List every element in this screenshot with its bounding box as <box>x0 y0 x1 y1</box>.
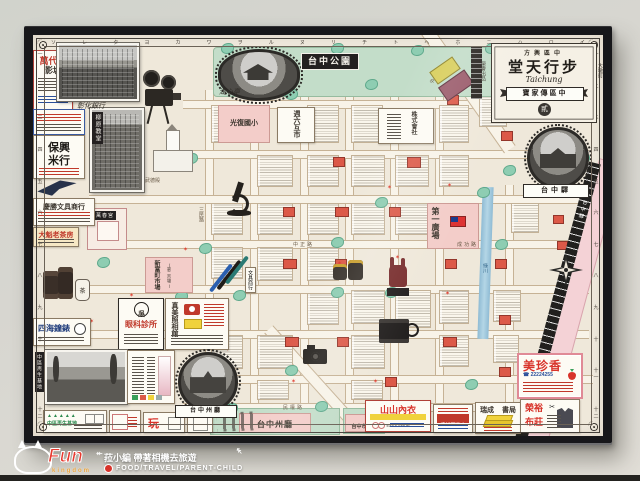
book-stack-2 <box>483 420 514 427</box>
red-building <box>333 157 345 167</box>
ad-fabric: 榮裕 布莊 ✂ <box>520 399 580 433</box>
camera-dot-icon <box>104 464 113 473</box>
drum-2 <box>348 260 363 280</box>
ad-stationery-lines <box>38 217 90 222</box>
star-marker: ✶ <box>183 247 188 253</box>
station-ribbon: 台中驛 <box>523 184 589 198</box>
bank-caption: 彰化銀行 <box>77 101 105 111</box>
tree-icon <box>503 165 516 176</box>
grid-numeral: 一 <box>36 51 44 58</box>
hand-label-box <box>387 288 409 296</box>
church-label: 柳原教堂 <box>92 112 103 144</box>
title-right-vertical: 大墩町 <box>597 63 603 103</box>
company-lines <box>387 113 401 139</box>
tree-icon <box>97 257 110 268</box>
hall-block-label: 台中州廳 <box>257 420 293 429</box>
photo-studio-tag <box>184 319 202 329</box>
title-seal: 貳 <box>538 103 551 116</box>
ad-bakery-lines <box>523 381 573 392</box>
map-text-block <box>439 155 469 187</box>
photo-of-framed-map: ✶✶✶✶✶✶✶✶✶✶✶✶ 湖心亭 台中公園 方輿區中 堂天行步 Taichung… <box>0 0 640 481</box>
star-marker: ✶ <box>387 185 392 191</box>
grid-numeral: 十二 <box>592 406 600 420</box>
grid-kana: ヌ <box>300 39 305 46</box>
qr-code-5 <box>193 416 208 431</box>
watermark-line2: FOOD/TRAVEL/PARENT-CHILD <box>116 465 243 472</box>
ad-herb-phone <box>438 425 468 429</box>
tree-icon <box>331 287 344 298</box>
grid-kana: ホ <box>455 39 460 46</box>
eye-clinic-badge-char: 吳 <box>138 311 145 318</box>
legend-column-1 <box>132 356 144 394</box>
map-text-block <box>511 203 539 233</box>
title-main: 堂天行步 <box>492 56 596 77</box>
street-label-zhongzheng: 中正路 <box>293 241 314 248</box>
map-text-block <box>351 155 385 187</box>
map-text-block <box>439 290 469 324</box>
qr-code-2 <box>94 414 104 424</box>
red-building <box>385 377 397 387</box>
palm-tree-1 <box>53 356 59 382</box>
tree-icon <box>375 197 388 208</box>
ad-herb-lines <box>438 407 468 412</box>
bottom-dark-edge <box>0 475 640 481</box>
grid-kana: ヨ <box>144 39 149 46</box>
pavilion-silhouette <box>243 64 273 80</box>
ad-herb: 清祺百草店 <box>433 404 473 433</box>
trees-row-icon: ▲▲▲▲▲ <box>47 413 77 419</box>
cat-ear-right <box>34 440 42 448</box>
legend-dot-yellow <box>148 395 154 400</box>
church-wings <box>153 150 193 172</box>
street-label-minquan: 民權路 <box>283 404 304 411</box>
strawberry-icon <box>568 372 576 380</box>
red-building <box>407 157 421 168</box>
microscope-illustration <box>223 180 257 218</box>
ad-rice-lines <box>39 167 79 175</box>
hand-finger-1 <box>390 257 394 269</box>
bra-doodle-right <box>378 422 385 429</box>
hand-finger-2 <box>401 258 405 269</box>
red-building <box>337 337 349 347</box>
corner-scroll-bl <box>37 421 48 432</box>
title-left-vertical: 榮譽出品 <box>480 61 487 107</box>
corner-scroll-br <box>588 421 599 432</box>
star-marker: ✶ <box>291 379 296 385</box>
eye-clinic-lines <box>124 332 158 344</box>
tea-jar-char: 茶 <box>79 289 85 295</box>
grid-kana: チ <box>362 39 367 46</box>
corner-scroll-tl <box>37 39 48 50</box>
cat-ear-left <box>18 440 26 448</box>
grid-numeral: 十 <box>36 336 44 343</box>
market-label: 新富町市場 <box>152 260 161 290</box>
grid-numeral: 九 <box>36 304 44 311</box>
church-roof <box>166 124 178 131</box>
ad-bookstore-lines <box>484 427 512 431</box>
saturday-market-block: 週六互市 <box>277 107 315 143</box>
qr-card-lines <box>128 415 137 427</box>
camera-logo-icon <box>184 304 200 315</box>
pocket-watch-icon <box>74 323 86 335</box>
ad-underwear-strip: EASY SHOP <box>370 414 426 420</box>
hand-sculpture-illustration <box>385 257 413 299</box>
grid-numeral: 七 <box>36 241 44 248</box>
grid-numeral: 七 <box>592 241 600 248</box>
hall-photo <box>178 352 238 412</box>
barrel-1 <box>43 271 59 299</box>
legend-gradient-bar <box>158 356 171 396</box>
camera-flash <box>307 345 315 350</box>
ad-bakery: 美珍香 ☎ 22224255 <box>517 353 583 399</box>
red-building <box>495 259 507 269</box>
compass-rose-icon <box>548 252 584 288</box>
palm-tree-2 <box>110 354 117 384</box>
title-subtitle: Taichung <box>492 75 596 84</box>
bank-photo-windows <box>62 49 134 97</box>
grid-kana: レ <box>82 39 87 46</box>
company-label: 株式會社 <box>409 111 418 141</box>
street-label-sanmin: 三民路 <box>198 207 205 222</box>
school-block: 光復國小 <box>218 105 270 143</box>
eye-clinic-badge: 吳 <box>134 302 149 317</box>
projector-reel-2 <box>161 75 176 90</box>
regen-base-photo <box>45 350 127 404</box>
scissors-icon: ✂ <box>549 403 555 411</box>
fun-logo-char: 玩 <box>148 415 159 431</box>
watermark-line1: 菈小編 帶著相機去旅遊 <box>104 451 197 464</box>
star-marker: ✶ <box>373 379 378 385</box>
red-building <box>285 337 299 347</box>
photo-studio-lines2 <box>171 335 223 345</box>
temple-courtyard <box>97 221 119 241</box>
dojo-label: 武德殿 <box>145 177 160 184</box>
grid-numeral: 五 <box>592 178 600 185</box>
grid-numeral: 六 <box>592 209 600 216</box>
grid-kana: ヲ <box>238 39 243 46</box>
pens-illustration: 文具商行 <box>217 253 257 303</box>
red-building <box>501 131 513 141</box>
grid-numeral: 八 <box>592 272 600 279</box>
bank-photo <box>57 43 139 101</box>
company-block: 株式會社 <box>378 108 434 144</box>
ad-stationery-line <box>38 212 90 216</box>
market-sublabel: (第二市場) <box>166 262 172 290</box>
grid-numeral: 九 <box>592 304 600 311</box>
red-building <box>283 207 295 217</box>
hall-ribbon: 台中州廳 <box>175 405 237 418</box>
hall-silhouette <box>190 371 226 393</box>
grid-numeral: 十一 <box>592 367 600 381</box>
microscope-base <box>227 210 251 216</box>
park-label: 台中公園 <box>301 53 359 70</box>
grid-kana: ト <box>393 39 398 46</box>
ad-underwear: 山山內衣 EASY SHOP <box>365 400 431 432</box>
ad-bookstore: 瑞成 書局 <box>475 402 521 434</box>
legend-dot-red <box>140 395 146 400</box>
grid-kana: タ <box>113 39 118 46</box>
grid-numerals-left: 一二三四五六七八九十十一十二 <box>36 51 44 420</box>
stationery-map-sign: 文具商行 <box>245 267 256 293</box>
star-marker: ✶ <box>445 291 450 297</box>
flag-icon <box>450 216 466 227</box>
strawberry-leaf <box>570 369 574 372</box>
projector-leg-1 <box>147 104 154 124</box>
barrel-2 <box>58 267 73 299</box>
camera-logo-lens <box>189 306 195 312</box>
title-banner: 寶家傳區中 <box>506 87 584 101</box>
legend-dot-green <box>132 395 138 400</box>
red-building <box>553 215 564 224</box>
projector-illustration <box>137 70 185 124</box>
grid-numeral: 八 <box>36 272 44 279</box>
regen-strip-card: ▲▲▲▲▲ 中區再生基地 <box>43 410 107 433</box>
station-silhouette <box>540 148 576 168</box>
printing-press-illustration <box>377 313 413 347</box>
grid-numeral: 十二 <box>36 406 44 420</box>
ad-fabric-sub: 布莊 <box>525 417 545 428</box>
ad-fabric-name: 榮裕 <box>525 403 545 414</box>
cat-body <box>14 446 52 474</box>
eye-clinic-name: 眼科診所 <box>119 319 163 330</box>
red-building <box>499 367 511 377</box>
legend-column-2 <box>147 356 155 394</box>
grid-numeral: 十 <box>592 336 600 343</box>
grid-kana: ソ <box>51 39 56 46</box>
grid-kana: カ <box>175 39 180 46</box>
drums-illustration <box>333 260 365 286</box>
map-text-block <box>493 335 519 363</box>
map-legend-panel <box>127 350 175 404</box>
station-photo <box>527 127 589 189</box>
red-building <box>445 259 457 269</box>
grid-numeral: 十一 <box>36 367 44 381</box>
red-building <box>443 337 457 347</box>
grid-numeral: 四 <box>592 146 600 153</box>
red-building <box>335 207 349 217</box>
grid-numeral: 五 <box>36 178 44 185</box>
qr-code-4 <box>168 417 181 430</box>
qr-card-orange <box>109 410 141 433</box>
grid-kana: ル <box>269 39 274 46</box>
regen-strip-lines <box>74 425 102 429</box>
projector-leg-2 <box>163 104 170 124</box>
flag-canton <box>451 217 458 222</box>
ad-photo-studio: 真美照相館 <box>165 298 229 350</box>
saturday-label: 週六互市 <box>291 110 301 140</box>
watermark-brand-sub: kingdom <box>52 468 91 474</box>
ad-herb-namebox: 清祺百草店 <box>437 414 469 423</box>
map-text-block <box>351 380 383 400</box>
grid-numeral: 二 <box>36 83 44 90</box>
drum-1 <box>333 264 347 280</box>
tea-barrels-illustration: 茶 <box>43 267 97 303</box>
white-church-illustration <box>153 130 191 170</box>
map-text-block <box>439 105 469 143</box>
vintage-camera-illustration <box>303 345 329 365</box>
ad-underwear-phone <box>390 422 424 427</box>
market-block: 新富町市場 (第二市場) <box>145 257 193 293</box>
map-poster: ✶✶✶✶✶✶✶✶✶✶✶✶ 湖心亭 台中公園 方輿區中 堂天行步 Taichung… <box>33 35 603 436</box>
regen-strip-label: 中區再生基地 <box>47 420 77 427</box>
grid-kana: ヘ <box>424 39 429 46</box>
arrow-doodle-left: ↞ <box>96 449 103 458</box>
plaza-label: 第一廣場 <box>430 207 441 247</box>
grid-numeral: 三 <box>36 114 44 121</box>
map-text-block <box>257 155 293 187</box>
street-label-chenggong: 成功路 <box>457 241 478 248</box>
temple-label: 萬春宮 <box>94 211 116 220</box>
grid-kana: ワ <box>207 39 212 46</box>
press-wheel <box>405 323 419 337</box>
grid-numeral: 六 <box>36 209 44 216</box>
projector-reel-1 <box>143 70 160 87</box>
red-building <box>283 259 297 269</box>
tree-icon <box>465 379 478 390</box>
map-text-block <box>257 380 289 400</box>
grid-kana: リ <box>331 39 336 46</box>
projector-lens <box>173 93 181 100</box>
ad-eye-clinic: 吳 眼科診所 <box>118 298 164 350</box>
school-label: 光復國小 <box>230 120 258 127</box>
river-label: 綠川 <box>482 263 489 273</box>
ad-watch-lines <box>38 335 84 341</box>
star-marker: ✶ <box>447 183 452 189</box>
red-building <box>499 315 511 325</box>
picture-frame: ✶✶✶✶✶✶✶✶✶✶✶✶ 湖心亭 台中公園 方輿區中 堂天行步 Taichung… <box>24 26 612 445</box>
red-building <box>389 207 401 217</box>
camera-lens <box>311 352 320 361</box>
ad-bookstore-name: 瑞成 <box>480 405 494 415</box>
watermark-brand: Fun <box>48 446 83 468</box>
title-block: 方輿區中 堂天行步 Taichung 寶家傳區中 貳 <box>491 43 597 123</box>
pavilion-caption: 湖心亭 <box>219 87 240 97</box>
grid-numeral: 四 <box>36 146 44 153</box>
photo-studio-lines <box>204 304 224 326</box>
legend-dot-gray <box>156 395 162 400</box>
ad-bakery-phone: ☎ 22224255 <box>523 372 553 378</box>
qr-code-3 <box>112 414 128 430</box>
ad-bookstore-sub: 書局 <box>502 405 516 415</box>
tea-jar: 茶 <box>75 279 90 301</box>
ad-fabric-lines <box>547 414 561 428</box>
projector-body <box>145 89 173 106</box>
